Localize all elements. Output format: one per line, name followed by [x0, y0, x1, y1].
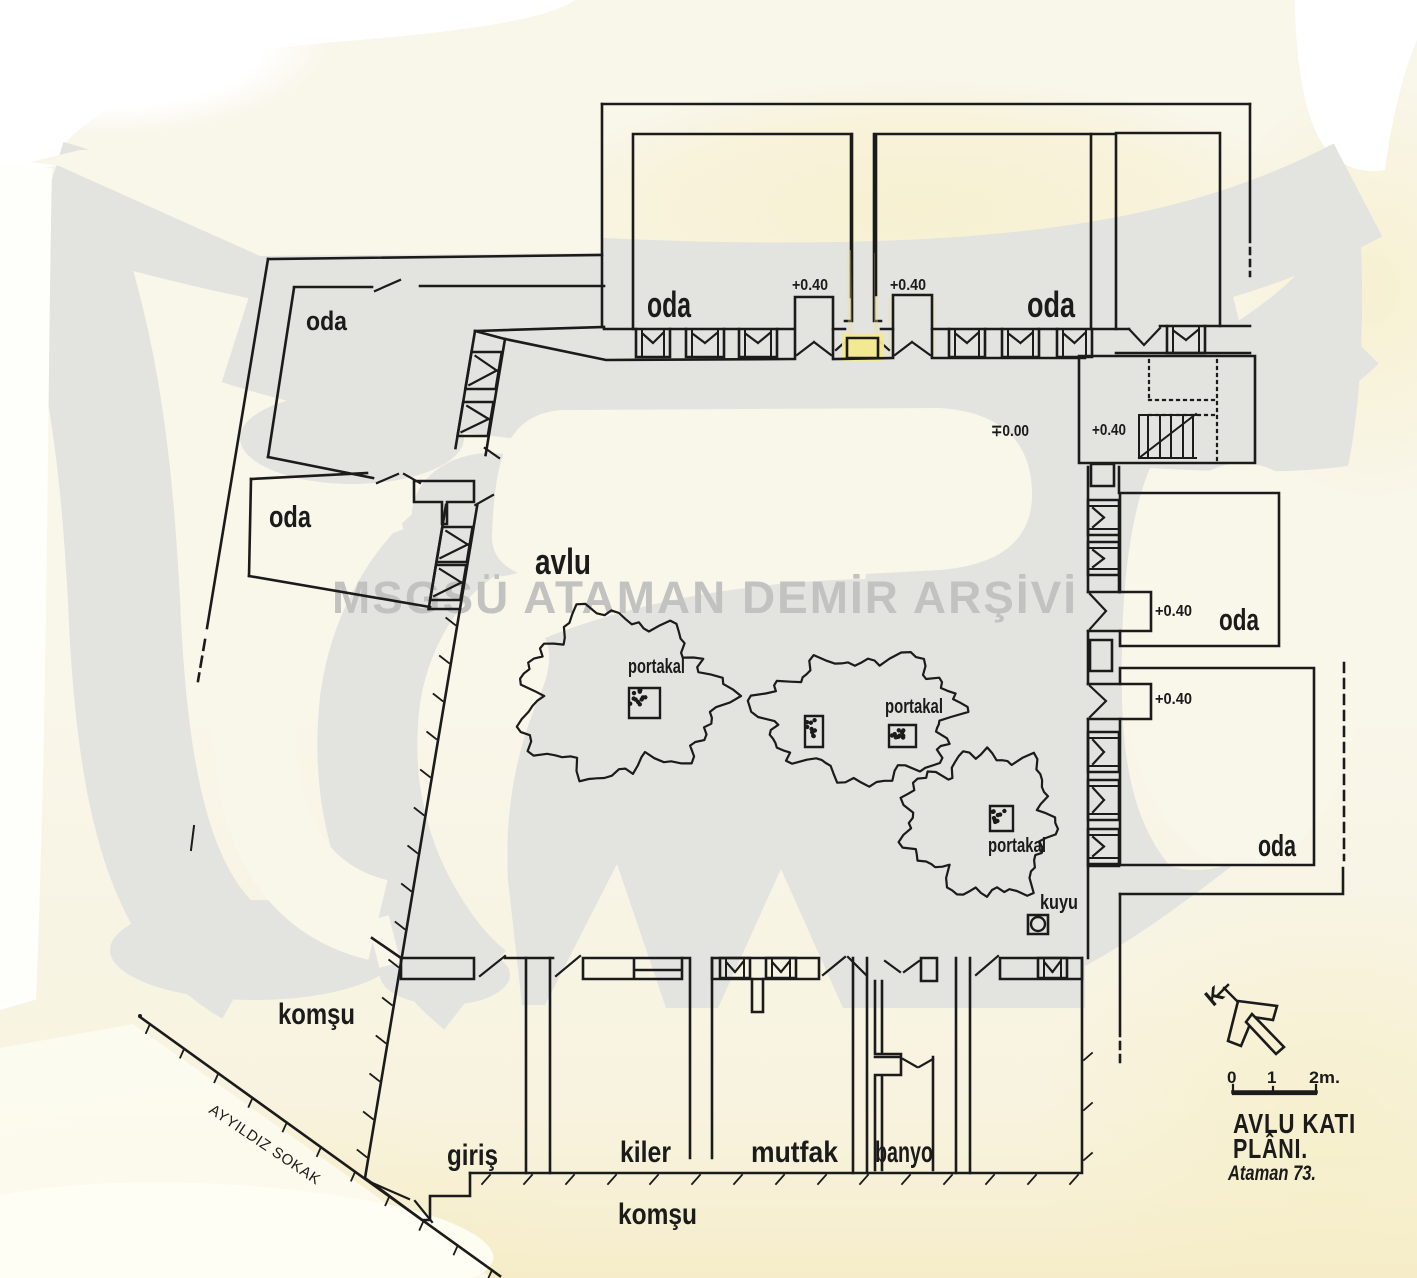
- svg-text:giriş: giriş: [447, 1139, 498, 1172]
- svg-text:oda: oda: [1027, 284, 1076, 325]
- svg-text:∓0.00: ∓0.00: [991, 423, 1029, 440]
- svg-text:kiler: kiler: [620, 1136, 671, 1169]
- svg-text:MSGSÜ ATAMAN DEMİR ARŞİVİ: MSGSÜ ATAMAN DEMİR ARŞİVİ: [332, 572, 1078, 623]
- svg-text:oda: oda: [269, 499, 312, 534]
- svg-text:oda: oda: [647, 284, 692, 325]
- svg-text:oda: oda: [306, 306, 348, 336]
- svg-text:+0.40: +0.40: [1155, 603, 1192, 620]
- svg-text:oda: oda: [1219, 602, 1260, 637]
- svg-text:0: 0: [1227, 1068, 1236, 1087]
- svg-text:+0.40: +0.40: [1155, 691, 1192, 708]
- svg-text:Ataman 73.: Ataman 73.: [1227, 1162, 1316, 1185]
- svg-text:PLÂNI.: PLÂNI.: [1233, 1133, 1308, 1164]
- svg-text:oda: oda: [1258, 828, 1297, 863]
- svg-text:komşu: komşu: [618, 1198, 697, 1231]
- svg-text:komşu: komşu: [278, 998, 355, 1031]
- svg-text:+0.40: +0.40: [890, 277, 926, 294]
- svg-text:portakal: portakal: [628, 656, 685, 678]
- svg-text:banyo: banyo: [875, 1136, 933, 1169]
- svg-text:portakal: portakal: [988, 835, 1046, 857]
- svg-text:+0.40: +0.40: [792, 277, 828, 294]
- svg-text:mutfak: mutfak: [751, 1136, 838, 1169]
- svg-text:avlu: avlu: [535, 541, 591, 582]
- svg-text:+0.40: +0.40: [1092, 422, 1126, 439]
- svg-text:1: 1: [1267, 1068, 1276, 1087]
- svg-text:kuyu: kuyu: [1040, 892, 1078, 914]
- svg-text:2m.: 2m.: [1309, 1068, 1340, 1087]
- svg-text:portakal: portakal: [885, 696, 943, 718]
